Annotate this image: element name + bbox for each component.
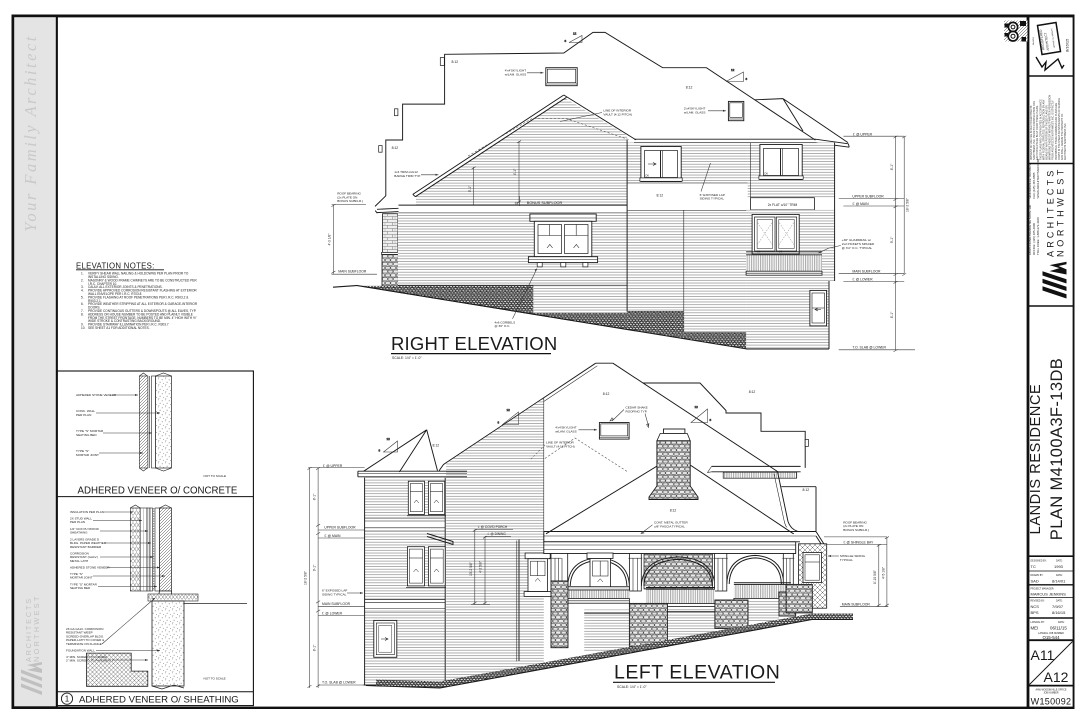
- svg-text:VAULT (4:12 PITCH): VAULT (4:12 PITCH): [603, 112, 632, 116]
- svg-text:ROOFING TYP.: ROOFING TYP.: [626, 409, 648, 413]
- svg-text:8:12: 8:12: [392, 146, 399, 150]
- svg-text:W150092: W150092: [1031, 697, 1072, 707]
- svg-text:8:12: 8:12: [803, 488, 810, 492]
- svg-text:8:12: 8:12: [603, 392, 610, 396]
- svg-text:REVISED BY:: REVISED BY:: [1031, 601, 1046, 603]
- svg-text:DATE:: DATE:: [1056, 574, 1063, 577]
- svg-text:SCALE: 1/4" = 1'-0": SCALE: 1/4" = 1'-0": [617, 685, 647, 689]
- svg-text:ELEVATION NOTES:: ELEVATION NOTES:: [76, 261, 155, 270]
- svg-text:9'-1": 9'-1": [468, 185, 472, 192]
- svg-text:DESIGNED BY:: DESIGNED BY:: [1031, 561, 1048, 563]
- svg-text:8'-1": 8'-1": [312, 644, 316, 651]
- svg-text:INSULATION PER PLAN: INSULATION PER PLAN: [70, 510, 104, 514]
- svg-text:9'-1": 9'-1": [890, 236, 894, 243]
- svg-text:T.O. SLAB @ LOWER: T.O. SLAB @ LOWER: [852, 346, 886, 350]
- svg-text:D6: D6: [765, 172, 769, 176]
- svg-text:8/16/15: 8/16/15: [1052, 610, 1066, 615]
- svg-text:w/LAM. GLASS: w/LAM. GLASS: [684, 110, 706, 114]
- svg-text:4.: 4.: [81, 289, 84, 293]
- svg-text:8'-1": 8'-1": [890, 311, 894, 318]
- svg-text:NOT TO SCALE: NOT TO SCALE: [204, 677, 226, 681]
- svg-text:MEI: MEI: [1031, 626, 1039, 631]
- svg-text:MARCUS JENKINS: MARCUS JENKINS: [1031, 592, 1067, 597]
- svg-text:RIGHT ELEVATION: RIGHT ELEVATION: [391, 333, 557, 354]
- svg-text:1: 1: [65, 695, 70, 704]
- svg-text:SHEATHING: SHEATHING: [70, 531, 88, 535]
- svg-text:@ 3⅝" O.C. TYPICAL: @ 3⅝" O.C. TYPICAL: [842, 246, 873, 250]
- svg-text:ADHERED STONE VENEER: ADHERED STONE VENEER: [70, 566, 110, 570]
- svg-text:BONUS SUBFLR.): BONUS SUBFLR.): [337, 199, 363, 203]
- svg-text:NORTHWEST: NORTHWEST: [1056, 166, 1066, 257]
- svg-text:VAULT (4:12 PITCH): VAULT (4:12 PITCH): [546, 445, 575, 449]
- svg-text:8'-1": 8'-1": [890, 163, 894, 170]
- svg-text:A11: A11: [1031, 647, 1055, 663]
- svg-text:TOLL FREE: 1-888-272-4100: TOLL FREE: 1-888-272-4100: [1036, 217, 1040, 255]
- svg-text:2" MIN. SCREED TO PAVEMENT): 2" MIN. SCREED TO PAVEMENT): [66, 659, 113, 663]
- svg-text:DATE:: DATE:: [1056, 560, 1063, 563]
- svg-text:BONUS SUBFLR.): BONUS SUBFLR.): [843, 528, 869, 532]
- svg-text:D6: D6: [646, 174, 650, 178]
- svg-text:ℂ @ MAIN: ℂ @ MAIN: [324, 534, 341, 538]
- svg-text:LATERAL BY:: LATERAL BY:: [1031, 621, 1046, 624]
- svg-text:ℂ @ DINING: ℂ @ DINING: [487, 532, 506, 536]
- svg-text:4'-2 5/8": 4'-2 5/8": [478, 560, 482, 573]
- svg-text:A12: A12: [1044, 669, 1069, 685]
- svg-text:ℂ @ LOWER: ℂ @ LOWER: [322, 611, 343, 615]
- svg-text:ADHERED STONE VENEER: ADHERED STONE VENEER: [76, 393, 117, 397]
- svg-text:ADHERED VENEER O/ CONCRETE: ADHERED VENEER O/ CONCRETE: [78, 486, 238, 497]
- svg-text:12: 12: [695, 405, 699, 409]
- svg-text:NCS: NCS: [1031, 604, 1040, 609]
- svg-text:10'-2 5/8": 10'-2 5/8": [469, 561, 473, 576]
- svg-text:8/14/01: 8/14/01: [1052, 579, 1066, 584]
- svg-text:NORTHWEST: NORTHWEST: [32, 594, 41, 662]
- svg-text:FOUNDATION WALL: FOUNDATION WALL: [66, 649, 95, 653]
- svg-text:18'-2 5/8": 18'-2 5/8": [905, 197, 909, 212]
- svg-text:LANDIS RESIDENCE: LANDIS RESIDENCE: [1028, 384, 1044, 535]
- svg-text:ℂ @ MAIN: ℂ @ MAIN: [852, 202, 869, 206]
- svg-text:4'-1": 4'-1": [513, 168, 517, 175]
- svg-text:MORTAR JOINT: MORTAR JOINT: [70, 576, 93, 580]
- svg-text:DATE:: DATE:: [1056, 600, 1063, 603]
- svg-text:DRAWN BY:: DRAWN BY:: [1031, 574, 1044, 577]
- svg-text:8/16/15: 8/16/15: [1065, 38, 1070, 52]
- svg-text:8:12: 8:12: [686, 86, 693, 90]
- svg-text:1993: 1993: [1054, 564, 1064, 569]
- svg-text:06/11/15: 06/11/15: [1050, 626, 1067, 631]
- svg-text:ℂ @ LOWER: ℂ @ LOWER: [852, 277, 873, 281]
- svg-text:DATE:: DATE:: [1058, 621, 1065, 624]
- svg-text:ℂ @ COV'D PORCH: ℂ @ COV'D PORCH: [478, 525, 508, 529]
- svg-text:PLAN M4100A3F-13DB: PLAN M4100A3F-13DB: [1048, 358, 1066, 540]
- svg-text:MAIN SUBFLOOR: MAIN SUBFLOOR: [852, 270, 881, 274]
- svg-text:4'-5 1/8": 4'-5 1/8": [881, 566, 885, 579]
- svg-text:1.: 1.: [81, 272, 84, 276]
- svg-text:12: 12: [573, 32, 577, 36]
- svg-text:SCALE: 1/4" = 1'-0": SCALE: 1/4" = 1'-0": [392, 356, 422, 360]
- svg-text:o/8" FASCIA TYPICAL: o/8" FASCIA TYPICAL: [654, 525, 685, 529]
- svg-text:8.: 8.: [81, 312, 84, 316]
- svg-text:UPPER SUBFLOOR: UPPER SUBFLOOR: [852, 194, 884, 198]
- svg-text:ADHERED VENEER O/ SHEATHING: ADHERED VENEER O/ SHEATHING: [79, 695, 239, 706]
- svg-text:SIDING TYPICAL: SIDING TYPICAL: [322, 593, 347, 597]
- svg-text:8:12: 8:12: [749, 390, 756, 394]
- svg-text:12: 12: [731, 68, 735, 72]
- svg-text:8:12: 8:12: [452, 60, 459, 64]
- svg-text:@ 36" O.C.: @ 36" O.C.: [495, 324, 511, 328]
- svg-text:O15-544: O15-544: [1042, 635, 1060, 640]
- svg-text:BARGE TRIM TYP.: BARGE TRIM TYP.: [394, 174, 421, 178]
- svg-text:8:12: 8:12: [657, 194, 664, 198]
- svg-text:UPPER SUBFLOOR: UPPER SUBFLOOR: [324, 526, 356, 530]
- svg-text:T.O. SLAB @ LOWER: T.O. SLAB @ LOWER: [322, 681, 356, 685]
- svg-text:RESISTANT BARRIER: RESISTANT BARRIER: [70, 545, 102, 549]
- svg-text:ARCHITECTS NORTHWEST, INC.: ARCHITECTS NORTHWEST, INC.: [1064, 123, 1067, 160]
- svg-text:ℂ @ SHINGLE BAY: ℂ @ SHINGLE BAY: [843, 540, 874, 544]
- svg-text:SIDING TYPICAL: SIDING TYPICAL: [700, 197, 725, 201]
- svg-text:ARCHITECTS: ARCHITECTS: [1046, 167, 1056, 257]
- svg-text:10.: 10.: [81, 326, 85, 330]
- svg-text:8:12: 8:12: [670, 509, 677, 513]
- svg-text:9'-1": 9'-1": [312, 564, 316, 571]
- svg-text:SEATING BED: SEATING BED: [70, 586, 91, 590]
- svg-text:MAIN SUBFLOOR: MAIN SUBFLOOR: [338, 270, 367, 274]
- svg-text:Your Family Architect: Your Family Architect: [21, 34, 40, 232]
- svg-text:MAIN SUBFLOOR: MAIN SUBFLOOR: [842, 602, 871, 606]
- svg-text:12: 12: [507, 408, 511, 412]
- svg-text:MAIN SUBFLOOR: MAIN SUBFLOOR: [322, 602, 351, 606]
- svg-text:PROJECT MANAGER:: PROJECT MANAGER:: [1031, 588, 1055, 591]
- svg-text:4'-3 1/8": 4'-3 1/8": [328, 233, 332, 246]
- svg-text:TERMINATE ON FLANGE: TERMINATE ON FLANGE: [66, 642, 102, 646]
- svg-text:w/LAM. GLASS: w/LAM. GLASS: [505, 72, 527, 76]
- svg-text:18'-2 5/8": 18'-2 5/8": [304, 570, 308, 585]
- svg-text:SEE SHEET A1 FOR ADDITIONAL NO: SEE SHEET A1 FOR ADDITIONAL NOTES.: [88, 326, 150, 330]
- svg-text:5.: 5.: [81, 295, 84, 299]
- svg-text:ANW WOODINVILLE OFFICE: ANW WOODINVILLE OFFICE: [1035, 688, 1066, 691]
- svg-text:PROVIDE FLASHING AT ROOF PENET: PROVIDE FLASHING AT ROOF PENETRATIONS PE…: [88, 295, 189, 299]
- svg-text:12: 12: [387, 437, 391, 441]
- svg-text:2.: 2.: [81, 278, 84, 282]
- svg-text:8:12: 8:12: [433, 444, 440, 448]
- svg-text:BPS: BPS: [1031, 610, 1039, 615]
- svg-text:METAL LATH: METAL LATH: [70, 559, 88, 563]
- svg-text:ℂ @ UPPER: ℂ @ UPPER: [853, 132, 873, 136]
- svg-text:w/LAM. GLASS: w/LAM. GLASS: [555, 429, 577, 433]
- svg-text:PER PLAN: PER PLAN: [76, 413, 91, 417]
- svg-text:8'-10 5/8": 8'-10 5/8": [873, 569, 877, 584]
- svg-text:ℂ @ UPPER: ℂ @ UPPER: [323, 464, 343, 468]
- svg-text:BONUS SUBFLOOR: BONUS SUBFLOOR: [527, 201, 563, 205]
- svg-text:PROVIDE WEATHER STRIPPING AT A: PROVIDE WEATHER STRIPPING AT ALL EXTERIO…: [88, 302, 198, 306]
- svg-text:7/9/07: 7/9/07: [1052, 604, 1064, 609]
- svg-text:6.: 6.: [81, 302, 84, 306]
- svg-text:2x FLAT o/10" TRIM: 2x FLAT o/10" TRIM: [768, 203, 798, 207]
- svg-text:JOB NUMBER: JOB NUMBER: [1043, 692, 1058, 694]
- svg-text:SEATING BED: SEATING BED: [76, 433, 97, 437]
- svg-text:No.6252: No.6252: [1033, 36, 1035, 45]
- svg-text:TC: TC: [1031, 564, 1036, 569]
- svg-text:WWW.ARCHITECTSNW.COM: WWW.ARCHITECTSNW.COM: [1036, 158, 1040, 198]
- svg-text:PER PLAN: PER PLAN: [70, 520, 85, 524]
- svg-text:8'-1": 8'-1": [312, 493, 316, 500]
- svg-text:TYPICAL: TYPICAL: [840, 558, 853, 562]
- svg-text:LEFT ELEVATION: LEFT ELEVATION: [614, 662, 780, 684]
- svg-text:NOT TO SCALE: NOT TO SCALE: [204, 474, 227, 478]
- svg-text:SAD: SAD: [1031, 579, 1039, 584]
- svg-text:MORTAR JOINT: MORTAR JOINT: [76, 453, 99, 457]
